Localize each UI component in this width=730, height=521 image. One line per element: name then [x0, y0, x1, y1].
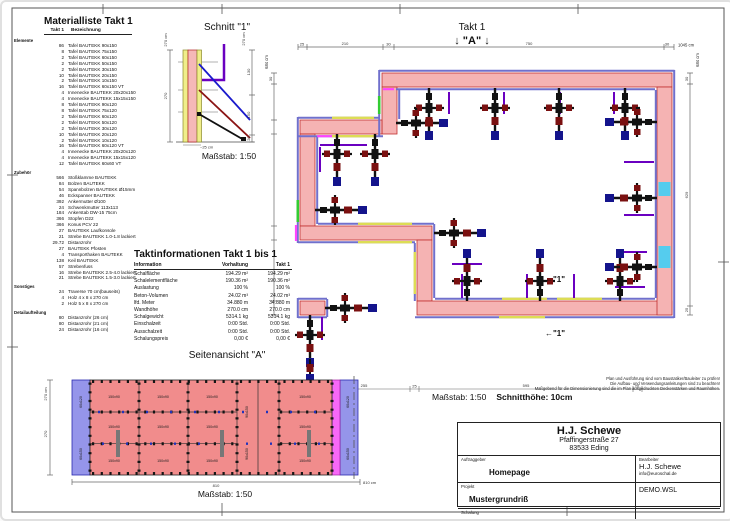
svg-text:684 cm: 684 cm [264, 55, 269, 69]
file-value: DEMO.WSL [639, 487, 717, 494]
section-label-elemente: Elemente [14, 38, 166, 43]
date-cell: Datum 20.11.2023 [636, 509, 720, 521]
section-view-scale: Maßstab: 1:50 [174, 151, 284, 161]
svg-text:150x90: 150x90 [157, 425, 169, 429]
svg-text:20: 20 [246, 136, 251, 141]
project-value: Mustergrundriß [469, 495, 528, 504]
svg-text:130: 130 [246, 68, 251, 75]
svg-text:150x90: 150x90 [108, 425, 120, 429]
svg-text:150x90: 150x90 [108, 395, 120, 399]
svg-text:150x90: 150x90 [206, 425, 218, 429]
section-view-title: Schnitt "1" [172, 22, 282, 33]
svg-text:25: 25 [300, 42, 305, 47]
takt-info-header: Information Vorhaltung Takt 1 [134, 260, 292, 270]
push-pull-prop-mid [199, 90, 250, 138]
svg-text:60x120: 60x120 [346, 396, 350, 408]
svg-text:25: 25 [412, 384, 417, 389]
svg-text:810: 810 [213, 483, 220, 488]
material-list-title: Materialliste Takt 1 [44, 16, 166, 27]
plan-title: Takt 1 [422, 22, 522, 33]
svg-text:90x150: 90x150 [245, 406, 249, 418]
svg-text:684 cm: 684 cm [695, 53, 700, 67]
title-block: H.J. Schewe Pfaffingerstraße 27 83533 Ed… [457, 422, 721, 507]
svg-text:30: 30 [268, 76, 273, 81]
formwork-cell: Schalung Baukrane BAUTEKK (Hauptlager) [458, 509, 636, 521]
svg-text:90x150: 90x150 [245, 448, 249, 460]
svg-text:150x90: 150x90 [108, 459, 120, 463]
file-cell: DEMO.WSL [636, 483, 720, 509]
svg-text:150x90: 150x90 [299, 425, 311, 429]
table-row: Einschalzeit0:00 Std.0:00 Std. [134, 321, 292, 328]
wall-section [188, 50, 197, 142]
table-row: Schalelementfläche190.36 m²190.36 m² [134, 278, 292, 285]
disclaimer-notes: Plan und Ausführung sind vom Baustatiker… [442, 376, 720, 391]
title-block-company: H.J. Schewe Pfaffingerstraße 27 83533 Ed… [458, 423, 720, 456]
plan-dim-right: 30 629 25 684 cm [684, 53, 700, 315]
material-list-item: 12Tafel BAUTEKK 60x60 VT [14, 161, 166, 167]
company-street: Pfaffingerstraße 27 [458, 437, 720, 445]
disclaimer-line: Maßgebend für die Dimensionierung sind d… [442, 386, 720, 391]
svg-text:150x90: 150x90 [157, 395, 169, 399]
svg-text:25: 25 [684, 307, 689, 312]
section-view-drawing: 270 cm 270 130 150 20 270 cm ~25 cm [163, 32, 255, 150]
table-row: Schalungspreis0,00 €0,00 € [134, 336, 292, 343]
svg-text:1045 cm: 1045 cm [678, 43, 695, 48]
svg-text:150x90: 150x90 [206, 395, 218, 399]
svg-text:30: 30 [665, 42, 670, 47]
svg-text:629: 629 [684, 191, 689, 198]
table-row: Wandhöhe270.0 cm270.0 cm [134, 307, 292, 314]
svg-text:30: 30 [386, 42, 391, 47]
company-city: 83533 Eding [458, 445, 720, 453]
svg-text:~25 cm: ~25 cm [200, 145, 214, 150]
editor-value: H.J. Schewe [639, 462, 717, 471]
post-bar [307, 430, 311, 457]
table-row: Beton-Volumen24.02 m³24.02 m³ [134, 293, 292, 300]
svg-text:810 cm: 810 cm [363, 480, 377, 485]
project-cell: Projekt Mustergrundriß [458, 483, 636, 509]
table-row: Schalgewicht5314.1 kg5314.1 kg [134, 314, 292, 321]
material-list-header: Takt 1 Bezeichnung [44, 28, 132, 35]
post-bar [116, 430, 120, 457]
takt-info-title: Taktinformationen Takt 1 bis 1 [134, 249, 292, 260]
floor-plan-drawing: 25 210 30 750 30 1045 cm 30 629 25 684 c… [264, 41, 720, 392]
company-name: H.J. Schewe [458, 425, 720, 437]
takt-info-table: Taktinformationen Takt 1 bis 1 Informati… [134, 249, 292, 343]
section-1-marker-lower: ←"1" [545, 329, 565, 338]
plan-sheet: 270 cm 270 130 150 20 270 cm ~25 cm [0, 0, 730, 521]
svg-text:255: 255 [361, 383, 368, 388]
section-1-marker-upper: ←"1" [545, 275, 565, 284]
svg-text:150x90: 150x90 [206, 459, 218, 463]
table-row: Ausschalzeit0:00 Std.0:00 Std. [134, 329, 292, 336]
plan-scale-note: Maßstab: 1:50Schnitthöhe: 10cm [432, 392, 572, 402]
svg-text:60x150: 60x150 [79, 448, 83, 460]
svg-text:150x90: 150x90 [299, 395, 311, 399]
material-list-elemente: 86Tafel BAUTEKK 90x1508Tafel BAUTEKK 75x… [14, 43, 166, 167]
section-label-zubehoer: Zubehör [14, 170, 166, 175]
svg-text:60x150: 60x150 [346, 448, 350, 460]
client-cell: Auftraggeber Homepage [458, 456, 636, 483]
svg-text:750: 750 [526, 41, 533, 46]
post-bar [220, 430, 224, 457]
table-row: Auslastung100 %100 % [134, 285, 292, 292]
table-row: Schalfläche194.29 m²194.29 m² [134, 271, 292, 278]
svg-text:270: 270 [43, 430, 48, 437]
editor-cell: Bearbeiter H.J. Schewe info@euroschal.de [636, 456, 720, 483]
section-a-marker: ↓ "A" ↓ [422, 35, 522, 47]
svg-text:60x120: 60x120 [79, 396, 83, 408]
svg-text:210: 210 [342, 41, 349, 46]
takt-info-rows: Schalfläche194.29 m²194.29 m²Schalelemen… [134, 271, 292, 343]
side-view-drawing: 150x90 150x90 150x90 150x90 150x90 150x9… [43, 376, 377, 488]
formwork-panel-left [183, 50, 188, 142]
side-view-title: Seitenansicht "A" [142, 350, 312, 361]
svg-text:30: 30 [684, 76, 689, 81]
svg-text:270 cm: 270 cm [43, 387, 48, 401]
side-view-scale: Maßstab: 1:50 [160, 489, 290, 499]
svg-text:150: 150 [246, 111, 251, 118]
table-row: lfd. Meter34.880 m34.880 m [134, 300, 292, 307]
svg-text:150x90: 150x90 [299, 459, 311, 463]
svg-text:150x90: 150x90 [157, 459, 169, 463]
isolated-wall [300, 301, 325, 315]
client-value: Homepage [489, 468, 530, 477]
editor-email: info@euroschal.de [639, 471, 717, 476]
svg-text:270 cm: 270 cm [241, 32, 246, 46]
